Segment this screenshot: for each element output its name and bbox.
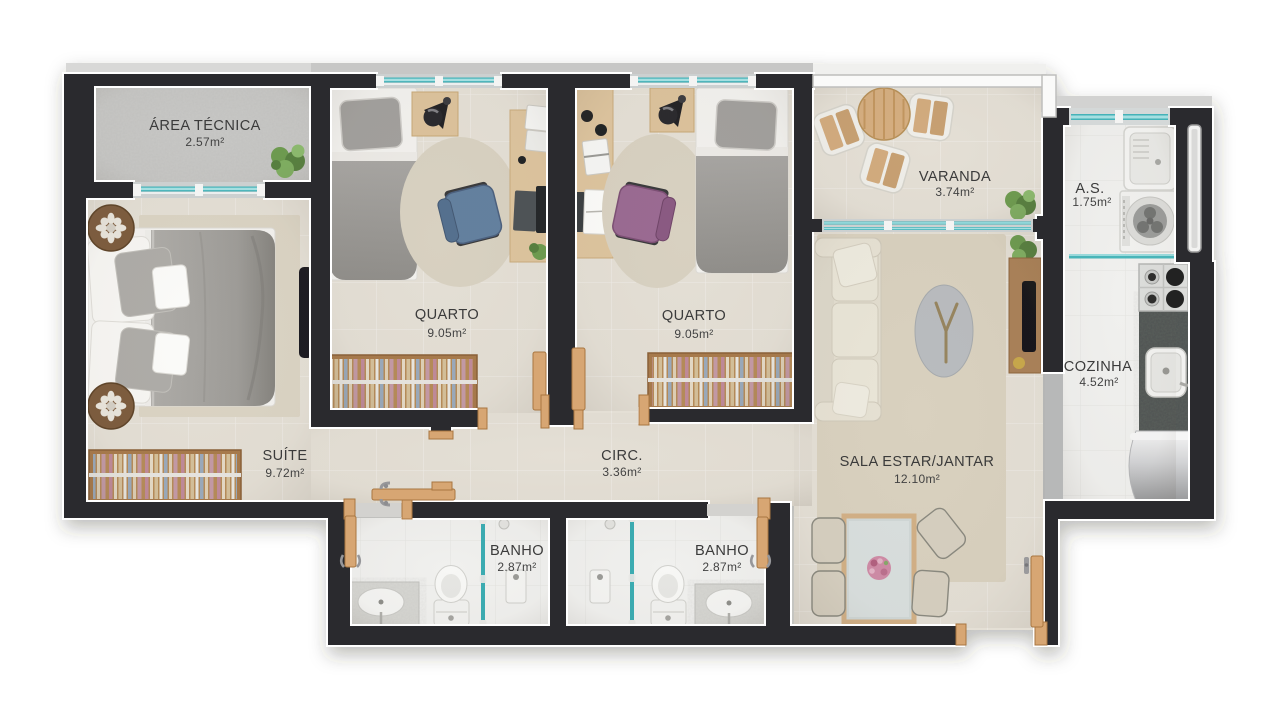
svg-text:SALA ESTAR/JANTAR: SALA ESTAR/JANTAR <box>840 454 995 470</box>
svg-text:3.74m²: 3.74m² <box>935 185 974 199</box>
svg-text:ÁREA TÉCNICA: ÁREA TÉCNICA <box>149 117 261 134</box>
svg-text:1.75m²: 1.75m² <box>1072 195 1111 209</box>
svg-text:9.72m²: 9.72m² <box>265 466 304 480</box>
svg-text:9.05m²: 9.05m² <box>674 327 713 341</box>
svg-text:QUARTO: QUARTO <box>415 307 479 323</box>
svg-text:4.52m²: 4.52m² <box>1079 375 1118 389</box>
svg-text:SUÍTE: SUÍTE <box>263 447 308 464</box>
svg-text:2.57m²: 2.57m² <box>185 135 224 149</box>
svg-text:2.87m²: 2.87m² <box>497 560 536 574</box>
svg-text:BANHO: BANHO <box>490 543 544 559</box>
svg-text:2.87m²: 2.87m² <box>702 560 741 574</box>
svg-text:COZINHA: COZINHA <box>1064 359 1132 375</box>
svg-text:9.05m²: 9.05m² <box>427 326 466 340</box>
svg-text:12.10m²: 12.10m² <box>894 472 940 486</box>
svg-text:CIRC.: CIRC. <box>601 448 643 464</box>
svg-text:BANHO: BANHO <box>695 543 749 559</box>
svg-text:VARANDA: VARANDA <box>919 169 991 185</box>
svg-text:QUARTO: QUARTO <box>662 308 726 324</box>
svg-text:3.36m²: 3.36m² <box>602 465 641 479</box>
